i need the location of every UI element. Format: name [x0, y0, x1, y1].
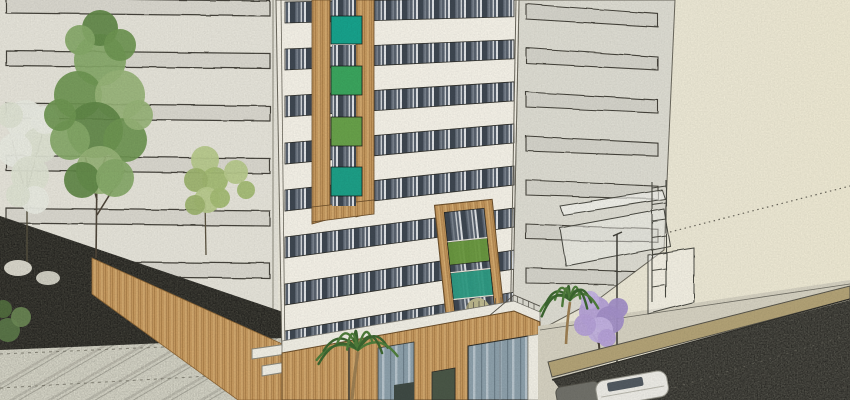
green-accent-panel	[331, 117, 362, 146]
foliage-blob	[185, 195, 205, 215]
frame-window	[332, 45, 356, 66]
frame-window	[332, 0, 356, 16]
parked-object	[4, 260, 32, 276]
entry-door	[432, 368, 455, 400]
courtyard-foliage	[11, 307, 31, 327]
frame-window	[332, 96, 356, 117]
foliage-blob	[224, 160, 248, 184]
wood-frame-upper	[312, 0, 374, 224]
green-accent-panel	[331, 167, 362, 196]
foliage-blob	[6, 183, 30, 207]
foliage-blob	[210, 188, 230, 208]
podium-window	[394, 382, 414, 400]
architectural-render: Sketch-style 3D architectural rendering …	[0, 0, 850, 400]
window-band-outline	[6, 0, 270, 16]
foliage-blob	[96, 159, 134, 197]
foliage-blob	[237, 181, 255, 199]
render-canvas	[0, 0, 850, 400]
green-louver-panel	[451, 269, 494, 300]
frame-window	[332, 197, 356, 206]
wood-rail-left	[312, 0, 330, 224]
foliage-blob	[598, 329, 616, 347]
storefront-glass-large	[468, 336, 528, 400]
foliage-blob	[123, 100, 153, 130]
foliage-blob	[104, 29, 136, 61]
foliage-blob	[64, 162, 100, 198]
green-accent-panel	[331, 16, 362, 44]
frame-window	[332, 147, 356, 167]
foliage-blob	[44, 99, 76, 131]
green-accent-panel	[331, 66, 362, 95]
foliage-blob	[608, 298, 628, 318]
foliage-blob	[65, 25, 95, 55]
foliage-blob	[574, 314, 596, 336]
green-louver-panel	[447, 238, 489, 265]
wireframe-box	[648, 248, 694, 314]
window-band-outline	[6, 208, 270, 226]
window-band-outline	[6, 51, 270, 69]
parked-object	[36, 271, 60, 285]
